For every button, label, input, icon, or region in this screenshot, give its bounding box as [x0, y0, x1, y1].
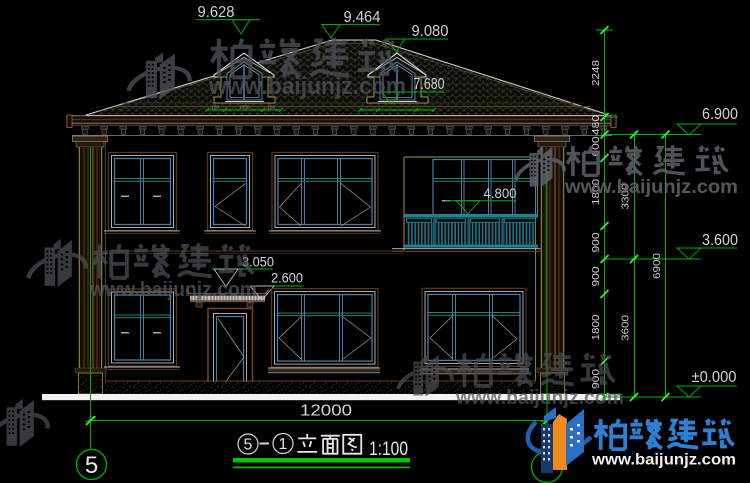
svg-text:1:100: 1:100 [369, 439, 408, 460]
svg-text:1800: 1800 [590, 314, 602, 340]
svg-text:3600: 3600 [620, 315, 632, 341]
svg-text:9.628: 9.628 [198, 4, 235, 21]
svg-text:900: 900 [590, 232, 602, 252]
svg-text:www.baijunjz.com: www.baijunjz.com [89, 279, 257, 301]
svg-text:4.800: 4.800 [484, 185, 517, 201]
svg-text:1350: 1350 [239, 104, 250, 110]
svg-text:www.baijunjz.com: www.baijunjz.com [455, 387, 624, 409]
svg-text:1: 1 [279, 436, 288, 453]
svg-text:900: 900 [590, 266, 602, 286]
svg-text:±0.000: ±0.000 [692, 369, 737, 386]
svg-text:2.600: 2.600 [271, 271, 303, 286]
svg-text:www.baijunjz.com: www.baijunjz.com [591, 452, 736, 469]
svg-text:9.080: 9.080 [412, 23, 449, 40]
svg-text:12000: 12000 [300, 403, 352, 420]
svg-text:5: 5 [244, 437, 253, 454]
svg-text:120: 120 [267, 104, 275, 110]
svg-text:480: 480 [590, 115, 602, 135]
svg-text:2248: 2248 [590, 60, 602, 86]
svg-text:6.900: 6.900 [702, 106, 738, 123]
svg-text:120: 120 [211, 104, 219, 110]
svg-text:www.baijunjz.com: www.baijunjz.com [564, 177, 738, 198]
svg-text:www.baijunjz.com: www.baijunjz.com [208, 73, 406, 100]
svg-text:5: 5 [85, 452, 98, 479]
svg-text:6900: 6900 [651, 253, 663, 279]
svg-text:3.600: 3.600 [702, 232, 738, 249]
svg-text:7.680: 7.680 [414, 76, 445, 93]
svg-text:9.464: 9.464 [344, 9, 381, 26]
